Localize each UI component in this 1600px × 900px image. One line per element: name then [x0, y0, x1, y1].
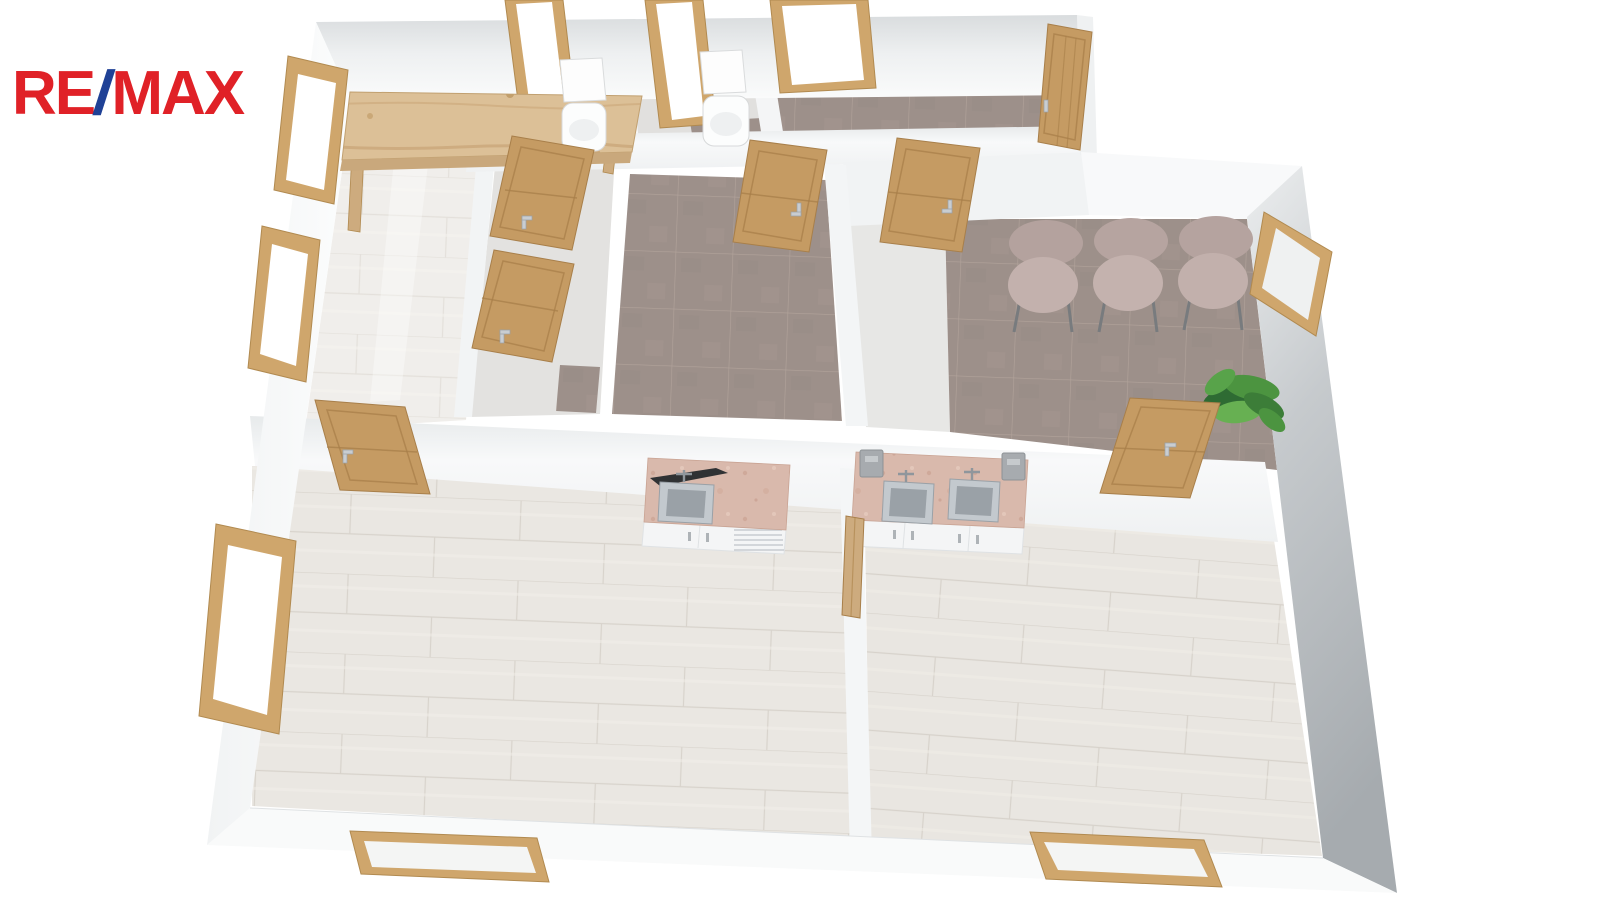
wall-dispenser: [1002, 453, 1025, 480]
cabinet-handle: [688, 532, 691, 541]
toilet-cistern: [560, 58, 606, 102]
floorplan-svg: [0, 0, 1600, 900]
remax-logo: RE/MAX: [12, 58, 243, 129]
toilet-2: [700, 50, 749, 146]
toilet-seat: [710, 112, 742, 136]
open-door-on-divider: [842, 516, 864, 618]
toilet-1: [560, 58, 606, 151]
cabinet-handle: [976, 535, 979, 544]
double-sink-cabinet: [850, 450, 1028, 554]
toilet-seat: [569, 119, 599, 141]
chair-seat: [1178, 253, 1248, 309]
cabinet-handle: [893, 530, 896, 539]
toilet-cistern: [700, 50, 746, 94]
waiting-room-door: [880, 138, 980, 252]
floorplan-render: RE/MAX: [0, 0, 1600, 900]
cabinet-handle: [911, 531, 914, 540]
cabinet-handle: [958, 534, 961, 543]
bottom-window-2: [1030, 832, 1222, 887]
top-window-3: [770, 0, 876, 93]
logo-re: RE: [12, 59, 94, 128]
single-sink-cabinet: [642, 458, 790, 554]
sink-basin: [955, 486, 993, 516]
chair-seat: [1093, 255, 1163, 311]
sink-basin: [666, 489, 706, 518]
closet-brown-patch: [556, 365, 600, 413]
cabinet-handle: [706, 533, 709, 542]
logo-max: MAX: [111, 59, 243, 128]
left-window-3: [199, 524, 296, 734]
chair-seat: [1008, 257, 1078, 313]
sink-basin: [889, 488, 927, 518]
bottom-window-1: [350, 831, 549, 882]
wall-dispenser: [860, 450, 883, 477]
